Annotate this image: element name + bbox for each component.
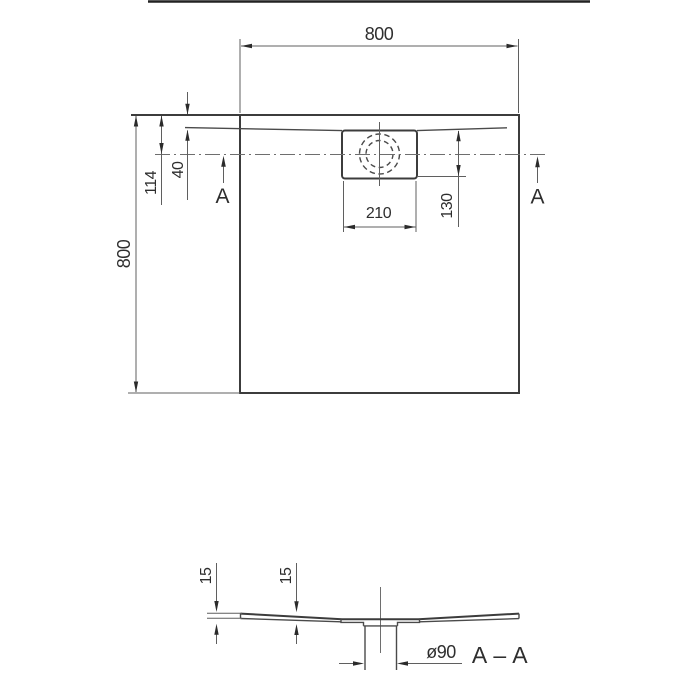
plan-view: 800 800 114 40 (114, 24, 548, 393)
dimension-210: 210 (344, 181, 417, 232)
dim-800-left-label: 800 (114, 239, 134, 268)
dim-800-top-label: 800 (365, 24, 394, 44)
dimension-15-edge: 15 (198, 563, 242, 644)
section-title: A – A (472, 642, 528, 668)
dim-diameter-label: ø90 (426, 642, 456, 662)
technical-drawing-page: 800 800 114 40 (0, 0, 700, 700)
dimension-drain-diameter: ø90 (339, 642, 462, 666)
section-marker-left: A (215, 156, 229, 208)
dimension-40: 40 (170, 92, 190, 200)
section-marker-right-label: A (530, 186, 544, 209)
shower-tray-drawing: 800 800 114 40 (0, 0, 700, 700)
dim-130-label: 130 (439, 193, 456, 219)
dim-114-label: 114 (143, 170, 160, 195)
dim-15-edge-label: 15 (198, 567, 215, 584)
dim-210-label: 210 (366, 205, 392, 222)
section-marker-left-label: A (215, 185, 229, 208)
section-view: 15 15 ø90 A – A (198, 563, 528, 670)
surface-line-left (185, 128, 342, 131)
dim-15-inner-label: 15 (278, 567, 295, 584)
section-marker-right: A (530, 156, 544, 208)
dimension-114: 114 (143, 116, 164, 206)
surface-line-right (417, 128, 507, 131)
dimension-130: 130 (418, 130, 466, 227)
profile-top-surface (241, 614, 520, 620)
dimension-height-800: 800 (114, 116, 240, 394)
dim-40-label: 40 (170, 161, 187, 178)
dimension-15-inner: 15 (278, 563, 299, 644)
dimension-width-800: 800 (240, 24, 519, 113)
